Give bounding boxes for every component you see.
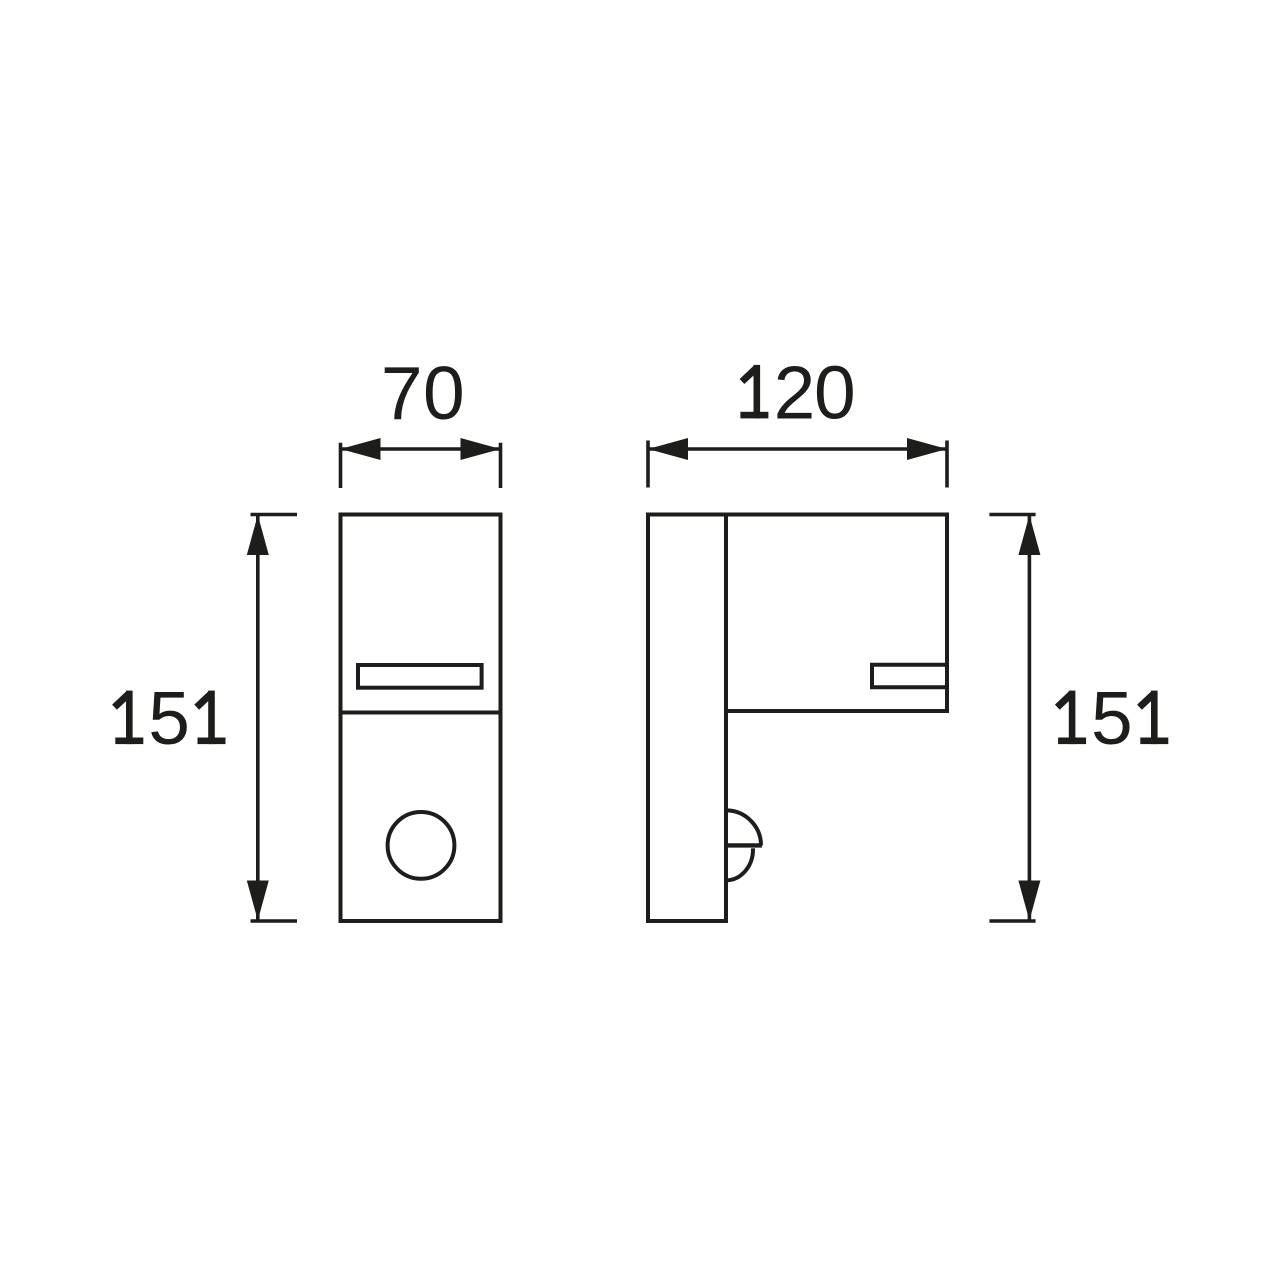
svg-text:2: 2: [774, 350, 816, 434]
svg-text:0: 0: [814, 350, 856, 434]
svg-text:0: 0: [423, 351, 465, 435]
svg-text:7: 7: [381, 351, 423, 435]
svg-text:5: 5: [148, 676, 190, 760]
svg-text:5: 5: [1091, 676, 1133, 760]
